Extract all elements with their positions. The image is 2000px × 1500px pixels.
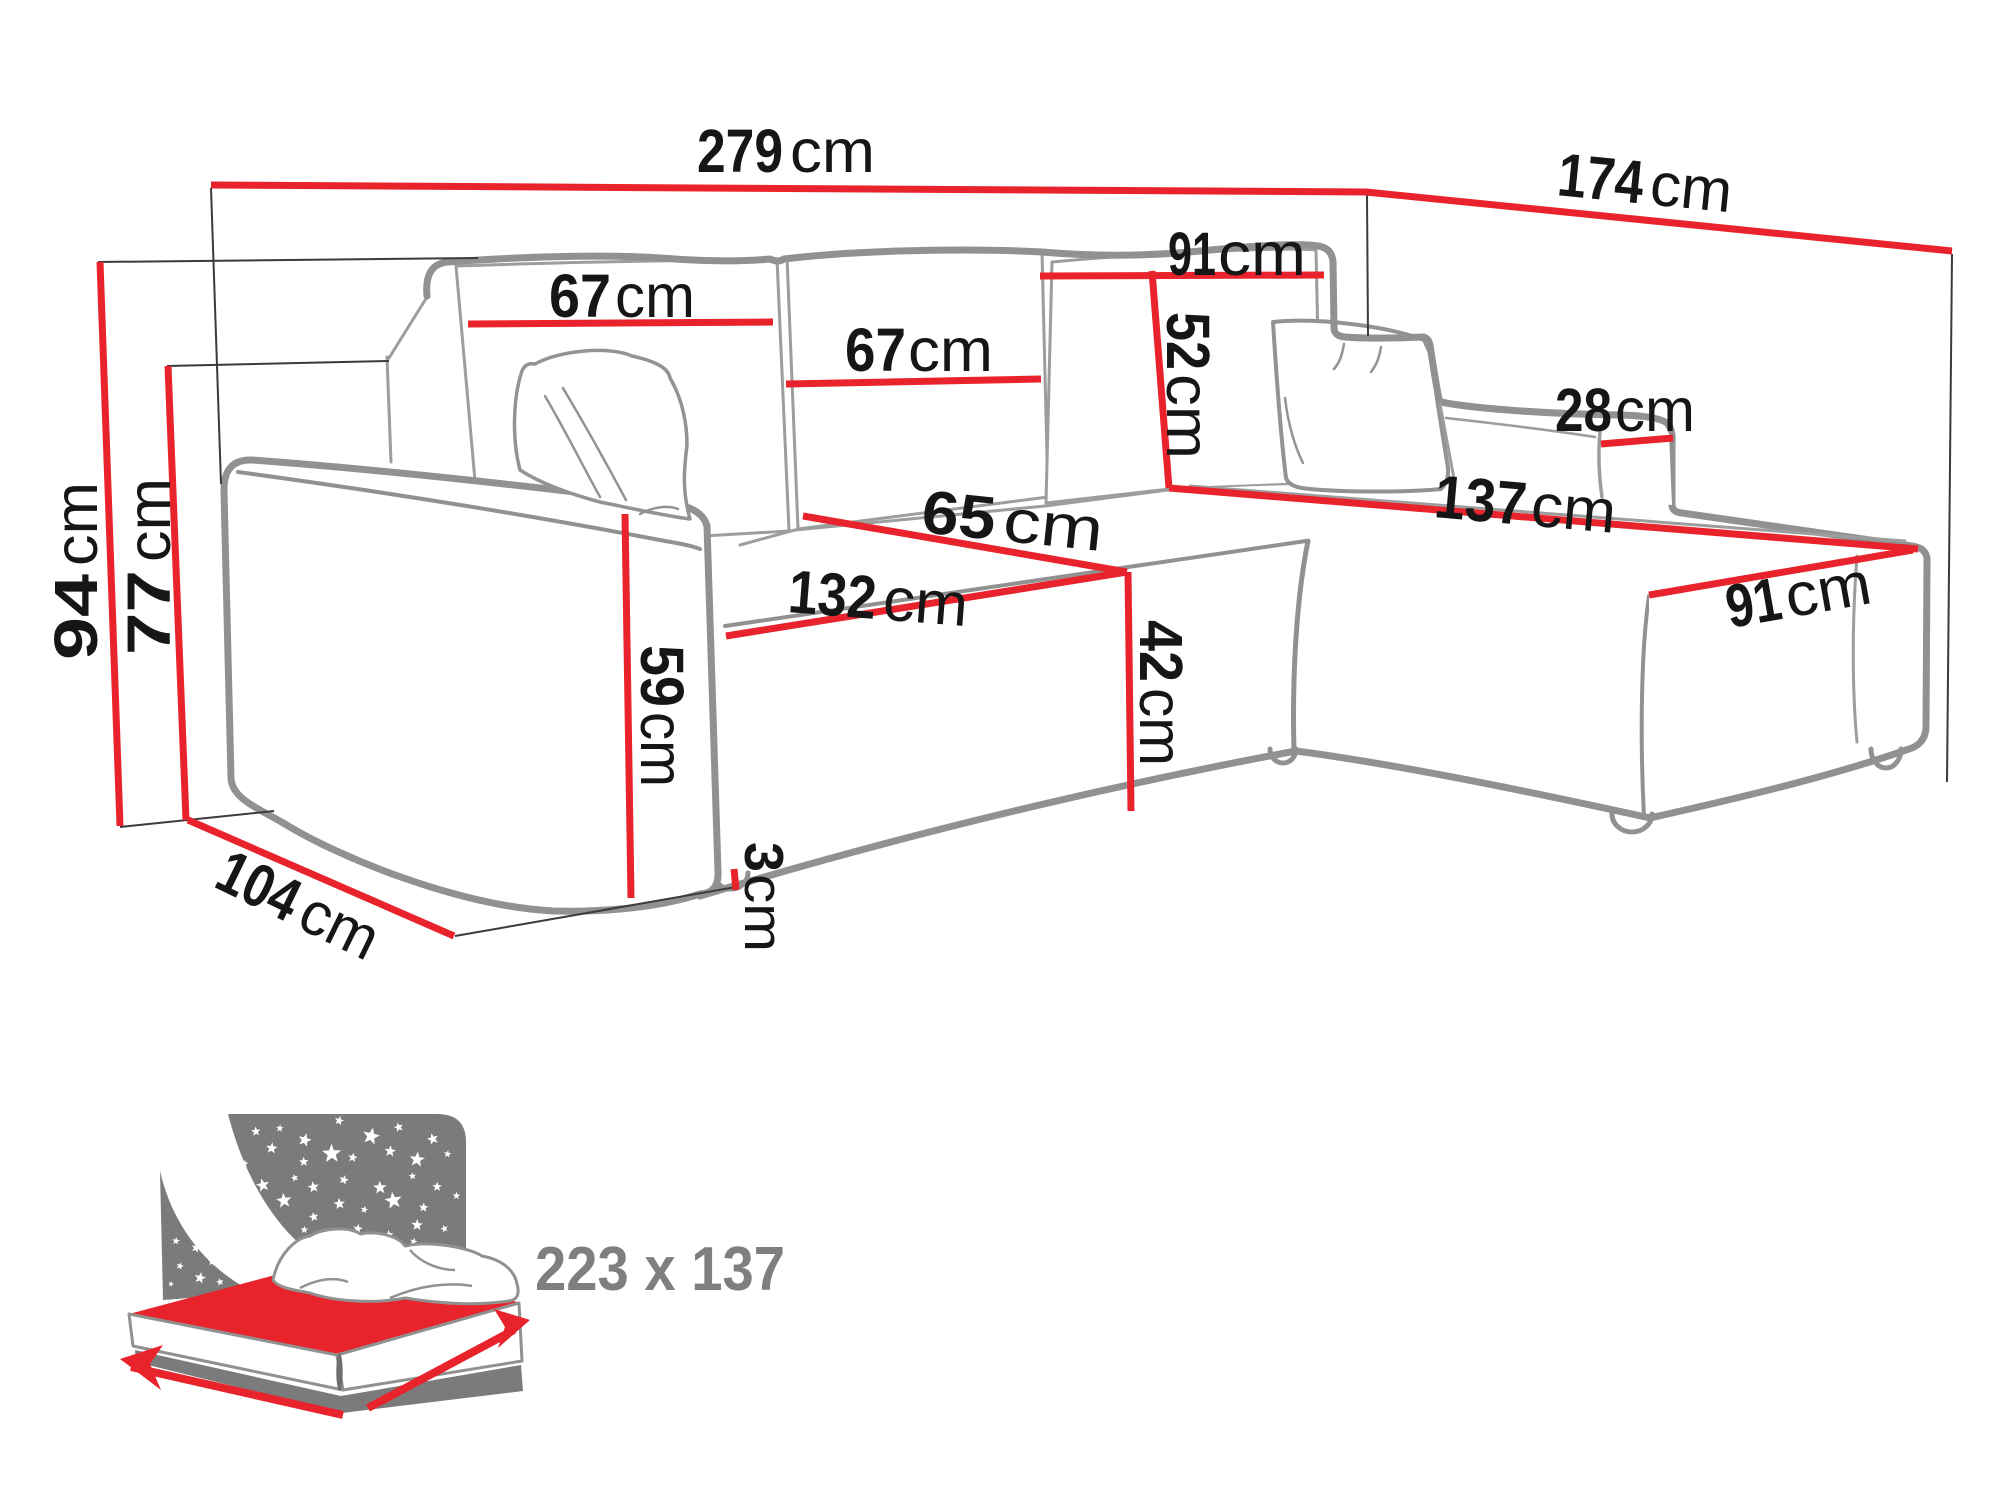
svg-text:cm: cm [908, 316, 993, 384]
svg-text:cm: cm [1127, 688, 1195, 766]
svg-text:cm: cm [1154, 374, 1222, 459]
svg-text:77: 77 [115, 570, 183, 655]
svg-text:cm: cm [1218, 220, 1306, 288]
svg-text:223 x 137: 223 x 137 [535, 1235, 785, 1304]
svg-text:91: 91 [1168, 220, 1216, 288]
svg-text:cm: cm [615, 262, 695, 330]
svg-text:cm: cm [42, 482, 110, 566]
svg-text:59: 59 [628, 645, 696, 707]
svg-text:cm: cm [1000, 486, 1107, 564]
svg-text:94: 94 [42, 574, 110, 660]
svg-text:137: 137 [1432, 462, 1530, 538]
svg-text:67: 67 [845, 316, 906, 384]
svg-text:91: 91 [1720, 564, 1786, 641]
svg-text:cm: cm [1615, 376, 1695, 444]
svg-text:65: 65 [919, 477, 1000, 552]
svg-text:28: 28 [1555, 376, 1612, 444]
svg-text:cm: cm [115, 478, 183, 562]
svg-text:67: 67 [549, 262, 611, 330]
svg-text:cm: cm [628, 712, 696, 787]
svg-text:42: 42 [1127, 620, 1195, 682]
svg-text:279: 279 [697, 117, 783, 185]
svg-text:3: 3 [733, 842, 795, 872]
svg-text:174: 174 [1555, 140, 1647, 216]
svg-text:cm: cm [733, 874, 795, 952]
svg-text:52: 52 [1154, 312, 1222, 370]
svg-text:132: 132 [786, 557, 879, 632]
svg-text:cm: cm [1647, 150, 1735, 226]
svg-text:cm: cm [1528, 471, 1619, 546]
svg-text:cm: cm [881, 565, 971, 639]
svg-text:cm: cm [790, 117, 875, 185]
